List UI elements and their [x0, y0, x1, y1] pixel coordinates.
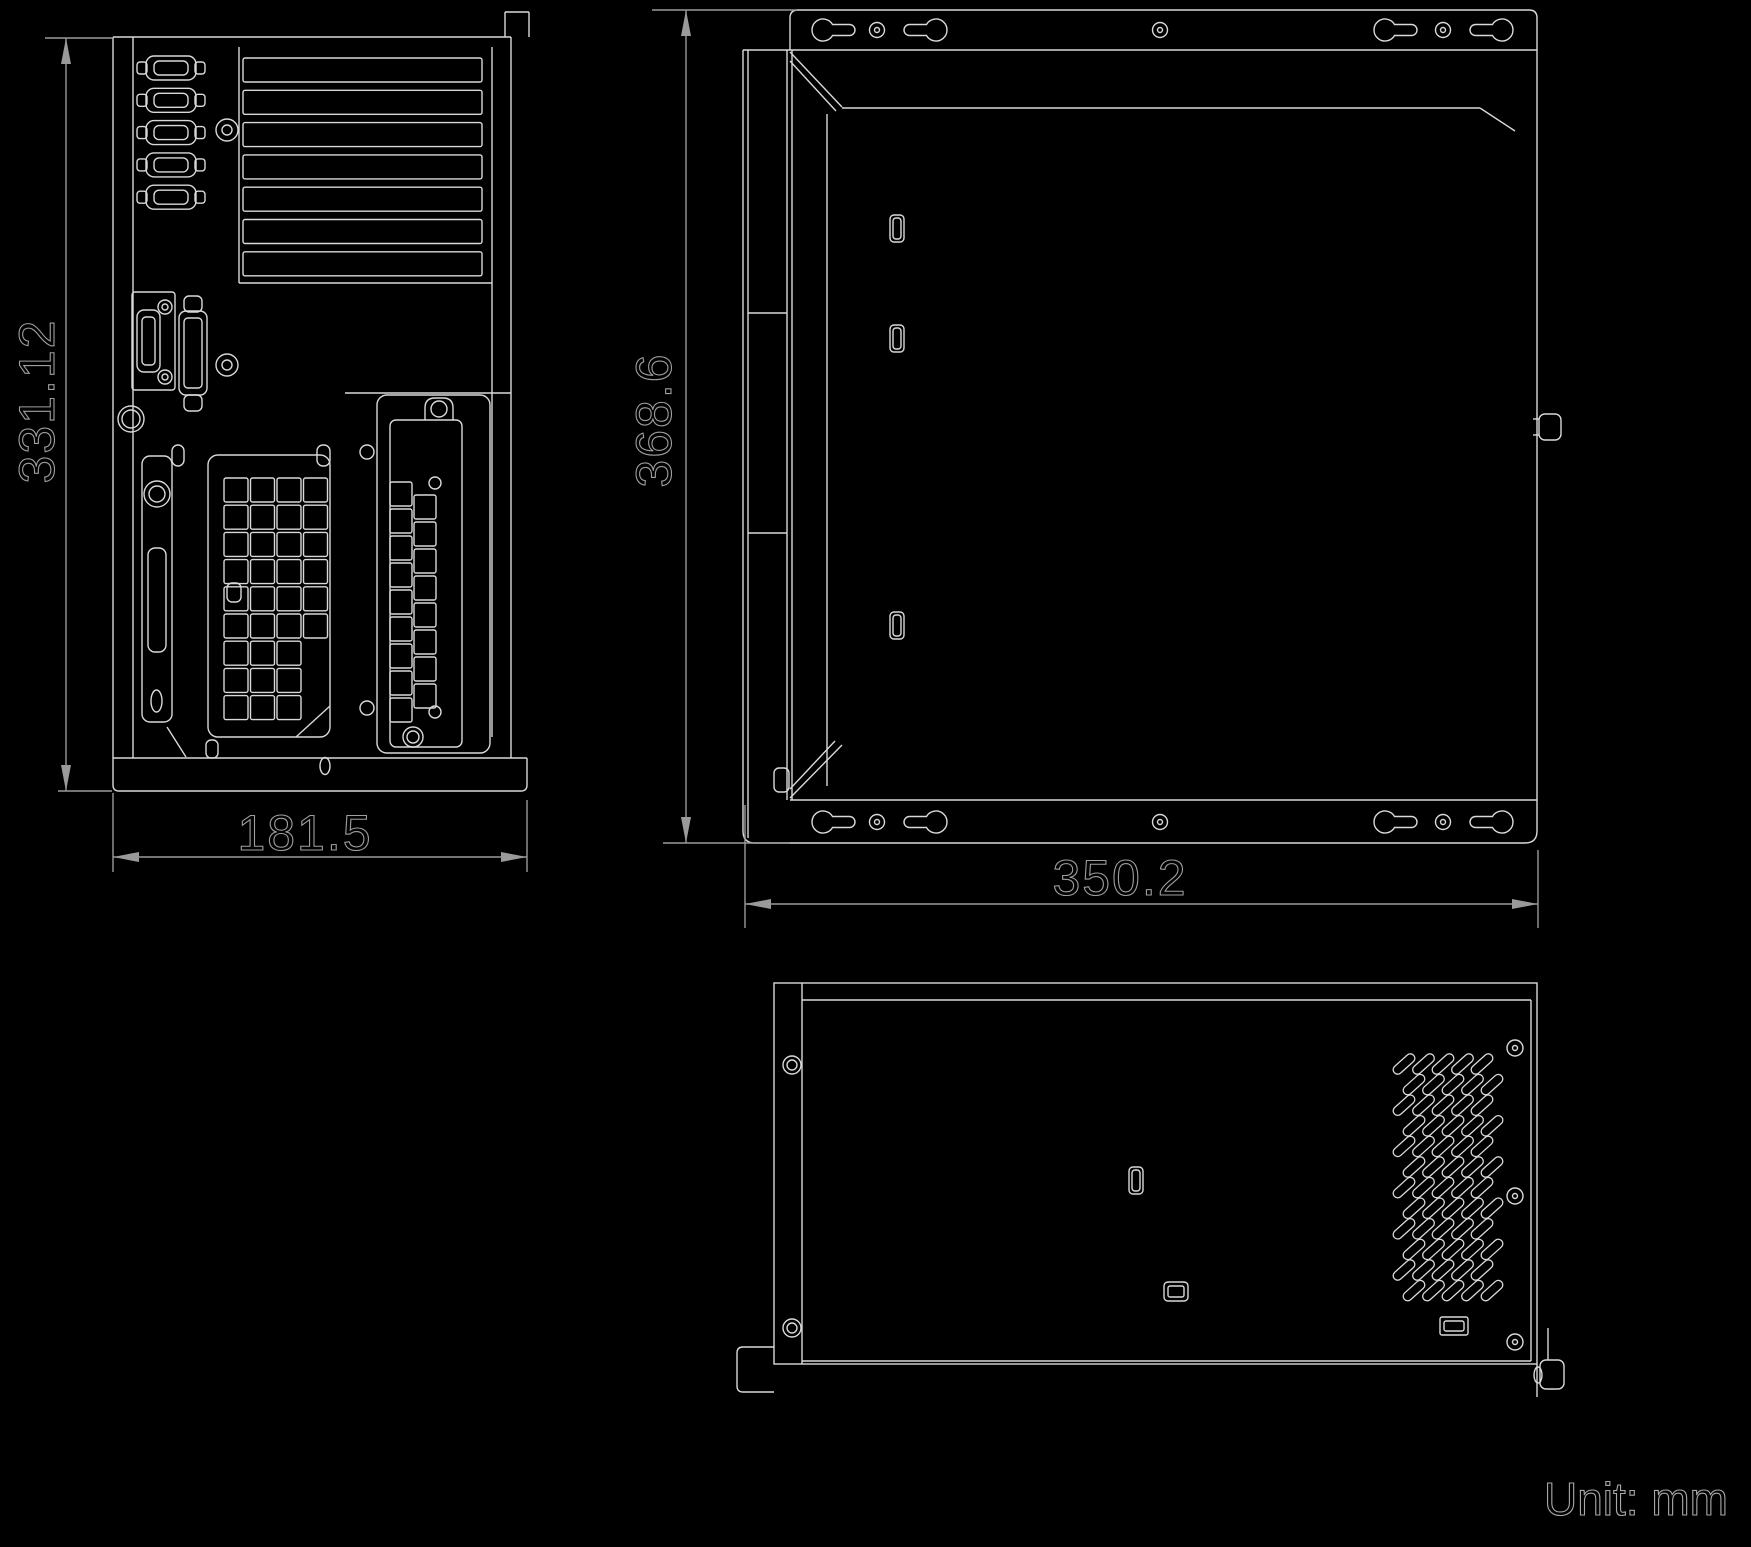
bracket-screw-hole [1441, 820, 1446, 825]
corner-latch-slot [1534, 1367, 1542, 1383]
bracket-screw-hole [1158, 28, 1163, 33]
psu-pin-cell [414, 684, 436, 708]
panel-slot [890, 325, 904, 352]
keyhole-slot [1374, 19, 1417, 41]
panel-slot-inner [1132, 1170, 1140, 1191]
psu-pin-cell [390, 590, 412, 614]
psu-pin-cell [414, 630, 436, 654]
grill-cell [251, 641, 275, 665]
panel-slot [890, 215, 904, 242]
psu-pin-cell [390, 482, 412, 506]
grill-cell [224, 478, 248, 502]
grill-cell [224, 696, 248, 720]
dimension-arrow [501, 852, 527, 862]
io-screw [158, 300, 172, 314]
db9-connector-inner [154, 61, 188, 75]
dimension-label-side-height: 368.6 [626, 352, 682, 487]
unit-label: Unit: mm [1544, 1473, 1728, 1525]
bracket-screw-hole [1441, 28, 1446, 33]
dvi-connector-inner [184, 318, 202, 388]
mount-hole [787, 1060, 797, 1070]
psu-pin-cell [390, 644, 412, 668]
expansion-slot-cover [243, 155, 482, 179]
dimension-label-rear-height: 331.12 [9, 319, 65, 484]
grill-cell [224, 641, 248, 665]
keyhole-slot [1470, 811, 1513, 833]
grill-cell [251, 696, 275, 720]
psu-pin-cell [414, 576, 436, 600]
technical-drawing: 331.12 181.5 368.6 350.2 Unit: mm [0, 0, 1751, 1547]
psu-pin-cell [414, 549, 436, 573]
grill-cell [277, 532, 301, 556]
corner-latch [1540, 1360, 1564, 1389]
grill-cell [224, 532, 248, 556]
rear-view [113, 12, 529, 791]
grill-cell [251, 614, 275, 638]
expansion-slot-cover [243, 90, 482, 114]
hook-tab [227, 583, 241, 602]
dimension-label-rear-width: 181.5 [237, 805, 372, 861]
panel-slot-inner [1168, 1286, 1184, 1297]
hook-tab [206, 740, 218, 758]
mount-hole [783, 1056, 801, 1074]
bracket-screw-hole [870, 815, 885, 830]
keyhole-slot [1374, 811, 1417, 833]
dimension-arrow [61, 38, 71, 64]
top-chamfer [790, 61, 836, 111]
bottom-view [737, 983, 1564, 1397]
bottom-chamfer [790, 741, 835, 789]
grill-cell [277, 668, 301, 692]
mount-bracket-bottom [755, 800, 1537, 843]
screw-hole [360, 701, 374, 715]
grill-cell [277, 478, 301, 502]
io-screw [162, 374, 168, 380]
dimension-arrow [745, 899, 771, 909]
grill-cell [304, 560, 328, 584]
psu-pin-cell [390, 698, 412, 722]
psu-pin-cell [414, 657, 436, 681]
grill-cell [251, 532, 275, 556]
expansion-slot-cover [243, 123, 482, 147]
grill-cell [224, 560, 248, 584]
keyhole-slot [1470, 19, 1513, 41]
grill-cell [277, 505, 301, 529]
foot-bracket [737, 1347, 774, 1392]
screw-hole [1513, 1340, 1518, 1345]
psu-bay [377, 395, 490, 753]
mount-bracket-top [790, 10, 1537, 50]
expansion-slot-cover [243, 58, 482, 82]
panel-slot-inner [1444, 1321, 1464, 1331]
expansion-slot-cover [243, 252, 482, 276]
keyhole-slot [904, 811, 947, 833]
bracket-screw-hole [875, 28, 880, 33]
psu-screw [407, 731, 419, 743]
expansion-slot-cover [243, 220, 482, 244]
bracket-hole [144, 481, 170, 507]
side-view [743, 10, 1561, 843]
psu-pin-cell [414, 603, 436, 627]
db9-connector-inner [154, 126, 188, 140]
grill-cell [304, 478, 328, 502]
side-latch [1539, 414, 1561, 440]
db9-connector-inner [154, 158, 188, 172]
psu-pin-cell [390, 671, 412, 695]
grill-cell [277, 560, 301, 584]
chassis-screw [222, 125, 232, 135]
vga-connector [137, 310, 160, 372]
dimension-arrow [113, 852, 139, 862]
dimension-label-side-width: 350.2 [1052, 850, 1187, 906]
screw-hole [1507, 1040, 1523, 1056]
chassis-screw [216, 354, 238, 376]
panel-slot [1129, 1167, 1143, 1194]
bracket-screw-hole [1436, 23, 1451, 38]
screw-hole [1513, 1046, 1518, 1051]
bracket-slot [148, 548, 166, 652]
screw-hole [1507, 1188, 1523, 1204]
psu-screw [403, 727, 423, 747]
edge-line [1480, 108, 1515, 131]
psu-pin-cell [390, 563, 412, 587]
panel-slot-inner [893, 218, 901, 239]
grill-cell [304, 505, 328, 529]
dimension-arrow [681, 817, 691, 843]
dimension-arrow [681, 10, 691, 36]
screw-hole [429, 477, 441, 489]
dimension-arrow [61, 765, 71, 791]
grill-cell [251, 505, 275, 529]
mount-hole [787, 1323, 797, 1333]
grill-cell [251, 478, 275, 502]
grill-cell [277, 587, 301, 611]
dimension-arrow [1512, 899, 1538, 909]
panel-slot-inner [893, 615, 901, 636]
db9-connector-inner [154, 190, 188, 204]
panel-slot [890, 612, 904, 639]
grill-cell [224, 668, 248, 692]
slot-hole [320, 758, 330, 775]
grill-cell [304, 587, 328, 611]
psu-pin-cell [414, 522, 436, 546]
dvi-connector [184, 395, 202, 411]
grill-cell [224, 505, 248, 529]
psu-pin-cell [414, 495, 436, 519]
bracket-screw-hole [1153, 815, 1168, 830]
edge-line [167, 727, 186, 757]
screw-hole [1513, 1194, 1518, 1199]
bracket-screw-hole [1153, 23, 1168, 38]
grill-cell [251, 587, 275, 611]
chassis-screw [216, 119, 238, 141]
bracket-hole [149, 486, 165, 502]
grill-cell [277, 696, 301, 720]
screw-hole [1507, 1334, 1523, 1350]
dvi-connector [184, 296, 202, 312]
db9-connector-inner [154, 93, 188, 107]
chassis-screw [222, 360, 232, 370]
bracket-slot [151, 690, 162, 712]
grill-cell [277, 614, 301, 638]
keyhole-slot [904, 19, 947, 41]
grill-cell [304, 614, 328, 638]
expansion-slot-cover [243, 187, 482, 211]
keyhole-slot [812, 811, 855, 833]
dvi-connector [179, 311, 207, 395]
top-chamfer [790, 52, 842, 107]
flange-hole [122, 410, 140, 428]
grill-cell [224, 614, 248, 638]
bracket-screw-hole [875, 820, 880, 825]
psu-tab-hole [431, 401, 447, 417]
grill-cell [251, 560, 275, 584]
drive-bracket [142, 456, 172, 722]
grill-cell [304, 532, 328, 556]
bracket-screw-hole [870, 23, 885, 38]
mount-hole [783, 1319, 801, 1337]
io-screw [162, 304, 168, 310]
hook-tab [172, 445, 184, 466]
grill-cell [251, 668, 275, 692]
psu-pin-cell [390, 536, 412, 560]
bracket-screw-hole [1436, 815, 1451, 830]
bracket-screw-hole [1158, 820, 1163, 825]
psu-pin-cell [390, 509, 412, 533]
vga-connector-inner [142, 317, 155, 365]
grill-cell [277, 641, 301, 665]
keyhole-slot [812, 19, 855, 41]
panel-slot-inner [893, 328, 901, 349]
bottom-chamfer [790, 745, 842, 798]
psu-pin-cell [390, 617, 412, 641]
screw-hole [360, 445, 374, 459]
io-screw [158, 370, 172, 384]
